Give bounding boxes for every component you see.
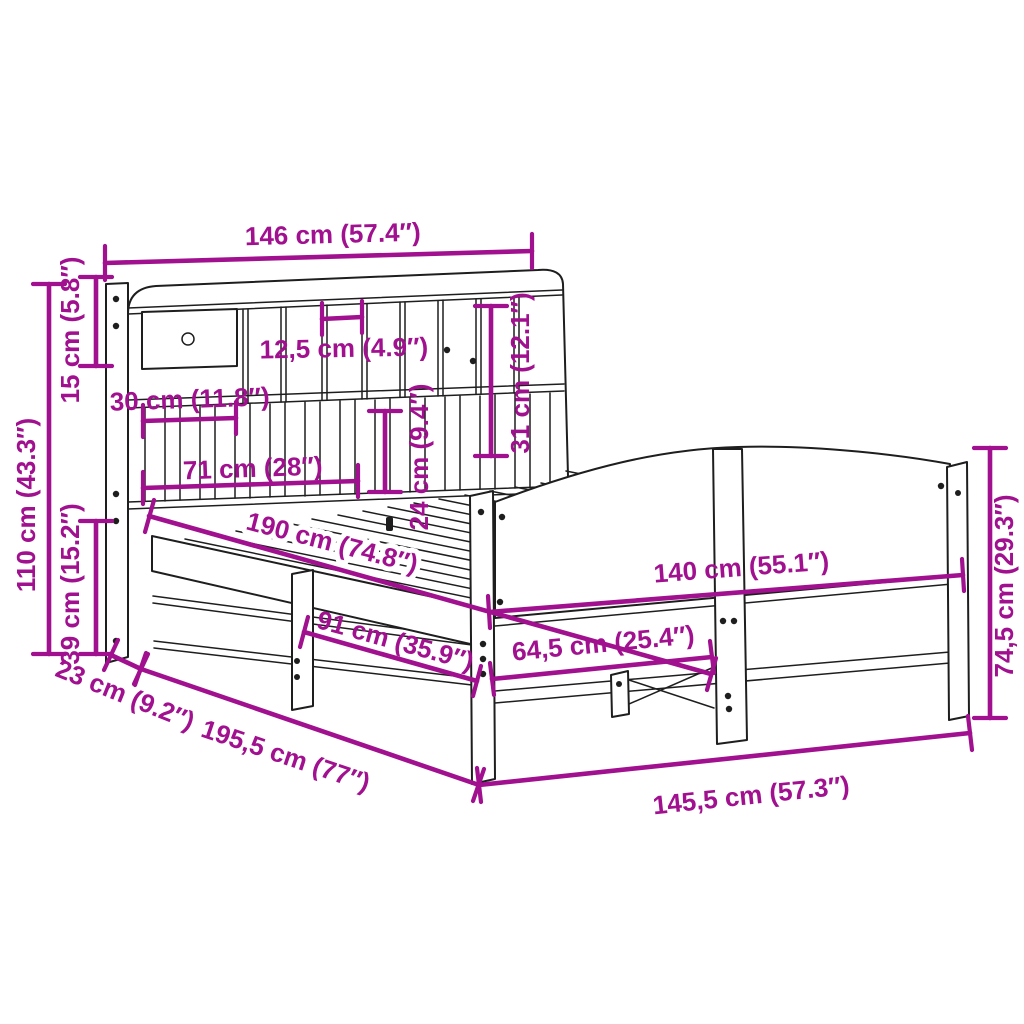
dim-label-lower-height: 39 cm (15.2″) xyxy=(55,503,85,664)
dim-label-total-length: 195,5 cm (77″) xyxy=(198,713,374,797)
dim-label-top-shelf-height: 15 cm (5.8″) xyxy=(55,257,85,404)
dimension-30cm: 30 cm (11.8″) xyxy=(109,381,270,437)
footboard-center-post xyxy=(713,449,747,744)
headboard-left-post xyxy=(106,283,128,663)
dimension-24cm: 24 cm (9.4″) xyxy=(369,384,434,531)
footboard xyxy=(470,447,969,784)
dim-label-total-width: 146 cm (57.4″) xyxy=(245,217,422,252)
footboard-near-post xyxy=(470,491,495,784)
bed-drawing xyxy=(106,270,969,784)
dim-label-depth: 23 cm (9.2″) xyxy=(52,653,199,736)
dimension-footboard-height: 74,5 cm (29.3″) xyxy=(974,448,1019,718)
footboard-center-leg xyxy=(611,671,629,717)
dimension-lower-height: 39 cm (15.2″) xyxy=(55,503,112,664)
dimension-total-width: 146 cm (57.4″) xyxy=(105,217,532,280)
dimension-top-shelf-height: 15 cm (5.8″) xyxy=(55,257,112,404)
dim-label-31cm: 31 cm (12.1″) xyxy=(505,292,535,453)
dim-label-compartment-width: 12,5 cm (4.9″) xyxy=(259,332,428,365)
dim-label-total-height: 110 cm (43.3″) xyxy=(11,418,41,592)
dimension-compartment-width: 12,5 cm (4.9″) xyxy=(259,301,428,364)
dim-label-24cm: 24 cm (9.4″) xyxy=(404,384,434,531)
dim-label-71cm: 71 cm (28″) xyxy=(182,451,323,486)
product-diagram: 146 cm (57.4″) 110 cm (43.3″) 15 cm (5.8… xyxy=(0,0,1024,1024)
dim-label-30cm: 30 cm (11.8″) xyxy=(109,381,270,417)
dimension-64-5cm: 64,5 cm (25.4″) xyxy=(490,619,714,695)
dim-label-outer-width: 145,5 cm (57.3″) xyxy=(651,770,851,820)
bed-dimension-drawing: 146 cm (57.4″) 110 cm (43.3″) 15 cm (5.8… xyxy=(0,0,1024,1024)
dimension-31cm: 31 cm (12.1″) xyxy=(475,292,535,456)
dim-label-footboard-height: 74,5 cm (29.3″) xyxy=(989,494,1019,677)
headboard-drawer xyxy=(142,309,237,369)
